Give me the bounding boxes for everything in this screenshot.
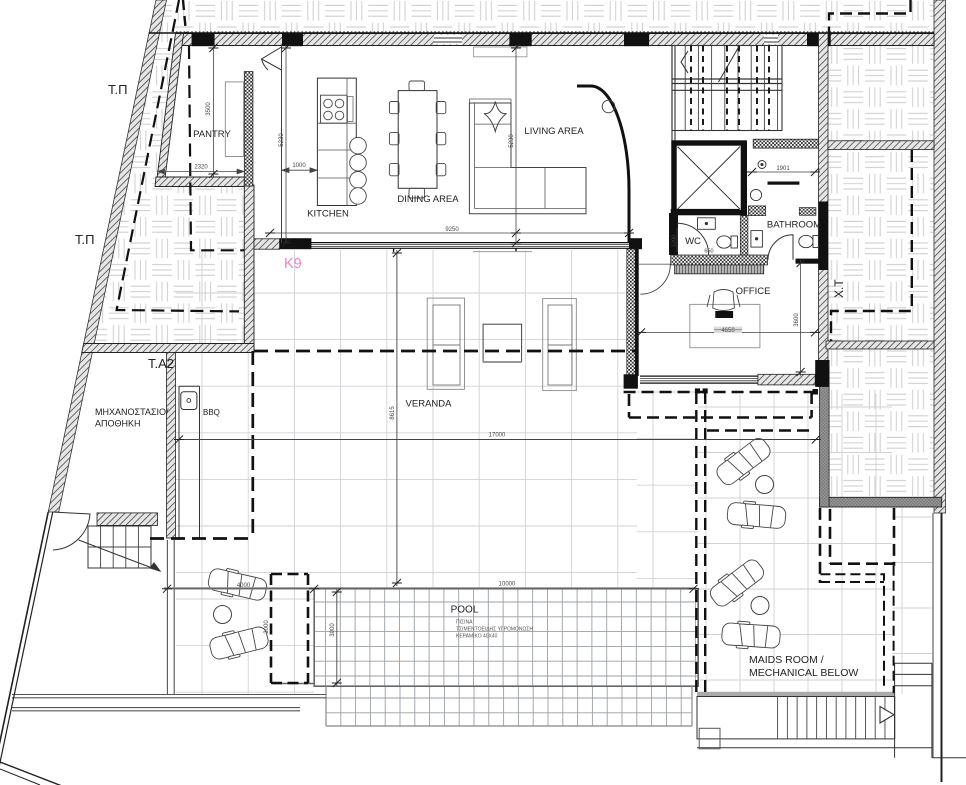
svg-text:Τ.Π: Τ.Π <box>108 82 128 97</box>
svg-text:Τ.Π: Τ.Π <box>75 232 95 247</box>
svg-text:3000: 3000 <box>264 620 270 634</box>
svg-text:KITCHEN: KITCHEN <box>307 209 349 220</box>
svg-text:BBQ: BBQ <box>203 408 220 417</box>
svg-text:DINING AREA: DINING AREA <box>397 194 459 205</box>
svg-text:ΑΠΟΘΗΚΗ: ΑΠΟΘΗΚΗ <box>95 419 141 429</box>
svg-text:3600: 3600 <box>794 313 800 327</box>
svg-text:ΤΣΙΜΕΝΤΟΕΙΔΗΣ ΥΓΡΟΜΟΝΩΣΗ: ΤΣΙΜΕΝΤΟΕΙΔΗΣ ΥΓΡΟΜΟΝΩΣΗ <box>456 627 533 633</box>
svg-text:Τ.Α2: Τ.Α2 <box>148 356 174 371</box>
svg-text:5230: 5230 <box>279 133 285 147</box>
svg-text:4650: 4650 <box>721 328 735 334</box>
svg-text:650: 650 <box>704 249 713 255</box>
svg-text:3000: 3000 <box>330 623 336 637</box>
svg-text:LIVING AREA: LIVING AREA <box>524 126 584 137</box>
svg-text:WC: WC <box>685 236 701 247</box>
svg-text:MAIDS ROOM /: MAIDS ROOM / <box>749 654 824 666</box>
svg-text:VERANDA: VERANDA <box>406 399 453 410</box>
svg-text:MECHANICAL BELOW: MECHANICAL BELOW <box>749 667 858 679</box>
svg-text:9250: 9250 <box>445 227 459 233</box>
svg-text:ΚΕΡΑΜΙΚΟ 40Χ40: ΚΕΡΑΜΙΚΟ 40Χ40 <box>456 634 498 640</box>
svg-text:1200: 1200 <box>672 235 678 247</box>
svg-text:PANTRY: PANTRY <box>193 129 231 140</box>
svg-text:2320: 2320 <box>194 165 208 171</box>
svg-text:17000: 17000 <box>489 433 506 439</box>
svg-text:Χ.Τ: Χ.Τ <box>832 279 846 298</box>
svg-text:5230: 5230 <box>509 134 515 148</box>
svg-text:10000: 10000 <box>499 582 516 588</box>
svg-text:1000: 1000 <box>292 163 306 169</box>
svg-text:ΜΗΧΑΝΟΣΤΑΣΙΟ/: ΜΗΧΑΝΟΣΤΑΣΙΟ/ <box>95 407 169 417</box>
svg-text:ΠΙΣΙΝΑ: ΠΙΣΙΝΑ <box>456 620 473 626</box>
svg-text:POOL: POOL <box>451 605 479 616</box>
svg-text:OFFICE: OFFICE <box>736 286 771 297</box>
svg-text:8615: 8615 <box>390 406 396 420</box>
svg-text:4000: 4000 <box>237 583 251 589</box>
svg-text:BATHROOM: BATHROOM <box>767 220 821 231</box>
svg-text:3500: 3500 <box>206 102 212 116</box>
svg-text:1901: 1901 <box>776 166 790 172</box>
svg-text:K9: K9 <box>284 256 302 272</box>
